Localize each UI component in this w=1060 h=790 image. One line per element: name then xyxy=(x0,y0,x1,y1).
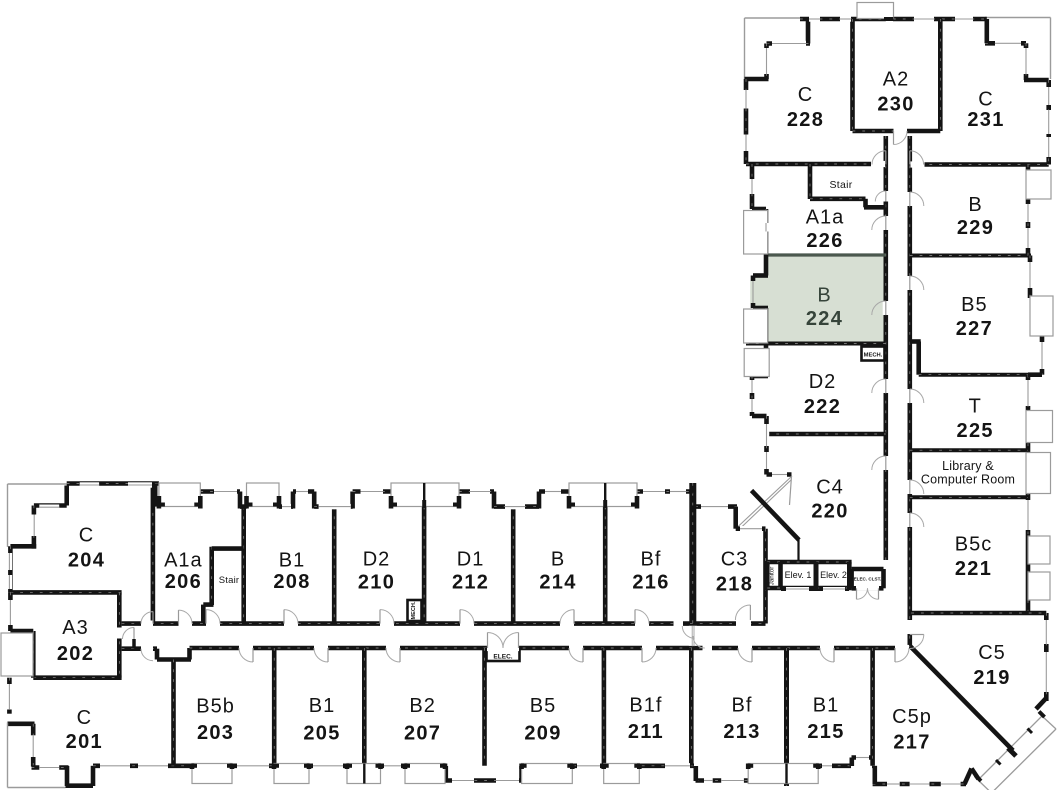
svg-text:222: 222 xyxy=(804,396,841,418)
svg-text:C: C xyxy=(77,707,92,729)
svg-text:B5b: B5b xyxy=(196,696,235,718)
svg-text:B1: B1 xyxy=(279,549,305,571)
svg-text:C: C xyxy=(79,525,94,547)
svg-text:227: 227 xyxy=(956,318,993,340)
svg-text:D2: D2 xyxy=(363,549,391,571)
svg-text:B: B xyxy=(817,285,831,307)
svg-text:T: T xyxy=(969,396,982,418)
svg-text:226: 226 xyxy=(806,230,843,252)
svg-text:A1a: A1a xyxy=(164,549,203,571)
svg-text:204: 204 xyxy=(68,549,105,571)
svg-text:217: 217 xyxy=(893,732,930,754)
svg-text:208: 208 xyxy=(273,571,310,593)
svg-text:B: B xyxy=(551,549,565,571)
svg-text:225: 225 xyxy=(957,420,994,442)
svg-text:C3: C3 xyxy=(721,548,749,570)
svg-text:202: 202 xyxy=(57,643,94,665)
svg-text:Janitor: Janitor xyxy=(769,567,776,586)
svg-text:207: 207 xyxy=(404,723,441,745)
svg-text:C5p: C5p xyxy=(892,706,932,728)
svg-text:MECH.: MECH. xyxy=(864,353,883,359)
svg-text:203: 203 xyxy=(197,722,234,744)
svg-text:211: 211 xyxy=(628,721,664,743)
svg-text:D1: D1 xyxy=(457,549,485,571)
svg-text:214: 214 xyxy=(539,572,576,594)
svg-text:Elev. 2: Elev. 2 xyxy=(820,570,847,580)
svg-text:206: 206 xyxy=(165,571,202,593)
svg-text:Bf: Bf xyxy=(641,549,662,571)
svg-text:221: 221 xyxy=(955,558,992,580)
svg-text:215: 215 xyxy=(807,721,844,743)
svg-text:C: C xyxy=(798,84,813,106)
svg-text:Stair: Stair xyxy=(829,179,852,191)
svg-text:Stair: Stair xyxy=(219,575,240,586)
svg-text:B: B xyxy=(968,194,982,216)
svg-text:D2: D2 xyxy=(809,371,837,393)
svg-text:A1a: A1a xyxy=(806,207,845,229)
svg-text:MECH.: MECH. xyxy=(411,601,417,619)
svg-text:230: 230 xyxy=(877,94,914,116)
svg-text:Bf: Bf xyxy=(732,695,753,717)
svg-text:ELEC. CLST.: ELEC. CLST. xyxy=(854,577,882,582)
svg-text:Computer Room: Computer Room xyxy=(921,473,1015,487)
svg-text:213: 213 xyxy=(723,721,760,743)
svg-text:B2: B2 xyxy=(409,695,435,717)
svg-text:Library &: Library & xyxy=(942,459,994,473)
svg-text:219: 219 xyxy=(973,667,1010,689)
svg-text:229: 229 xyxy=(957,217,994,239)
svg-text:209: 209 xyxy=(524,723,561,745)
svg-text:C5: C5 xyxy=(978,642,1006,664)
svg-text:Elev. 1: Elev. 1 xyxy=(785,570,812,580)
svg-text:201: 201 xyxy=(66,731,103,753)
svg-text:A3: A3 xyxy=(62,617,88,639)
svg-text:B1f: B1f xyxy=(629,695,662,717)
svg-text:B5c: B5c xyxy=(955,534,992,556)
svg-text:220: 220 xyxy=(811,501,848,523)
svg-text:216: 216 xyxy=(632,572,669,594)
svg-text:B5: B5 xyxy=(530,695,556,717)
svg-text:218: 218 xyxy=(716,574,753,596)
svg-text:205: 205 xyxy=(303,723,340,745)
svg-text:ELEC.: ELEC. xyxy=(493,654,512,661)
svg-text:224: 224 xyxy=(806,308,843,330)
svg-text:210: 210 xyxy=(358,572,395,594)
svg-text:228: 228 xyxy=(787,109,824,131)
svg-text:231: 231 xyxy=(967,109,1004,131)
svg-text:B1: B1 xyxy=(813,695,839,717)
svg-text:C4: C4 xyxy=(816,476,844,498)
svg-text:A2: A2 xyxy=(883,69,909,91)
svg-text:212: 212 xyxy=(452,572,489,594)
svg-text:B5: B5 xyxy=(961,294,987,316)
svg-text:B1: B1 xyxy=(309,695,335,717)
svg-text:C: C xyxy=(978,89,993,111)
